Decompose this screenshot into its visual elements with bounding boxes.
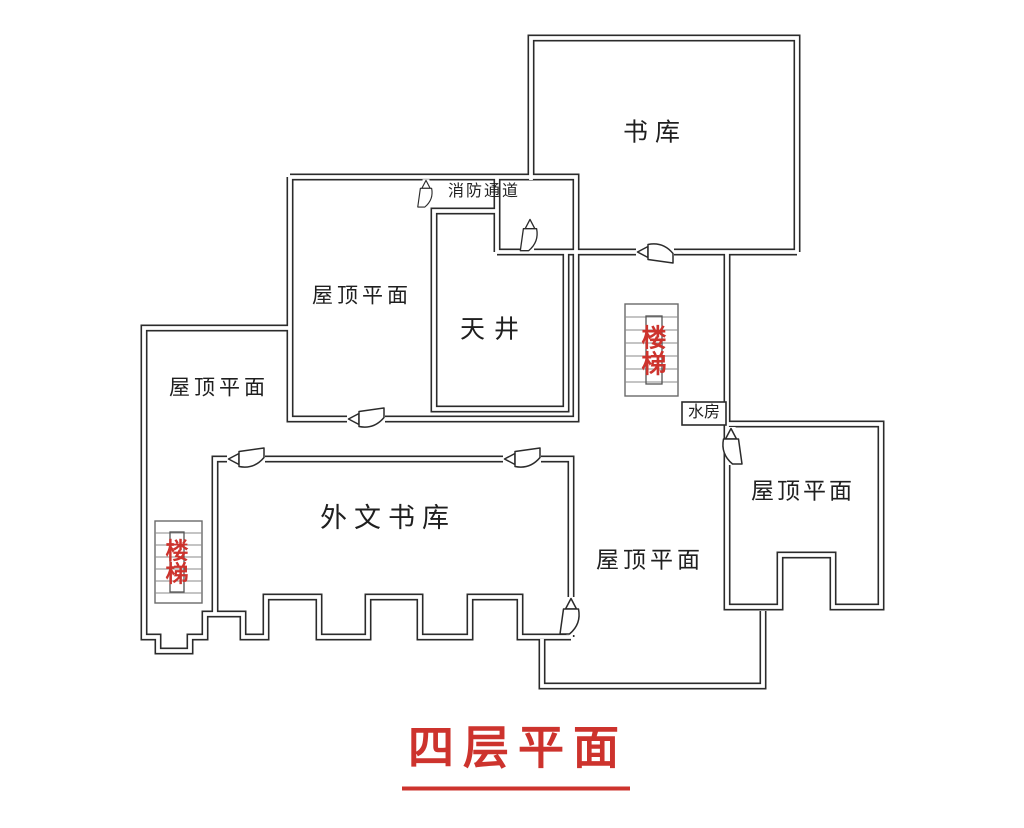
room-label-roof-plane-open: 屋顶平面 bbox=[596, 547, 704, 572]
door-icon-foreign-top-right bbox=[503, 448, 541, 467]
room-label-roof-plane-left: 屋顶平面 bbox=[169, 376, 269, 399]
room-label-roof-plane-right: 屋顶平面 bbox=[751, 478, 855, 503]
floor-plan-canvas bbox=[0, 0, 1024, 828]
room-label-book-storage: 书库 bbox=[623, 119, 687, 147]
room-label-foreign-book-storage: 外文书库 bbox=[320, 504, 456, 534]
room-label-fire-escape-passage: 消防通道 bbox=[448, 183, 520, 201]
stairs-label-right: 楼梯 bbox=[640, 327, 669, 378]
door-icon-book-storage bbox=[636, 244, 674, 263]
walls-core bbox=[144, 38, 881, 686]
door-icon-foreign-top-left bbox=[227, 448, 265, 467]
room-label-light-well: 天井 bbox=[460, 316, 528, 344]
door-icon-fire-passage-shaft bbox=[520, 218, 537, 251]
walls-outline bbox=[144, 38, 881, 686]
floor-plan: 书库 消防通道 屋顶平面 天井 屋顶平面 外文书库 屋顶平面 屋顶平面 水房 楼… bbox=[0, 0, 1024, 828]
door-icon-foreign-right bbox=[560, 597, 579, 635]
stairs-label-left: 楼梯 bbox=[164, 540, 190, 587]
floor-title: 四层平面 bbox=[402, 712, 630, 791]
room-label-water-room: 水房 bbox=[688, 404, 720, 422]
door-icon-fire-passage-west bbox=[418, 179, 432, 208]
room-label-roof-plane-mid: 屋顶平面 bbox=[312, 284, 412, 307]
door-icon-mid-room bbox=[347, 408, 385, 427]
